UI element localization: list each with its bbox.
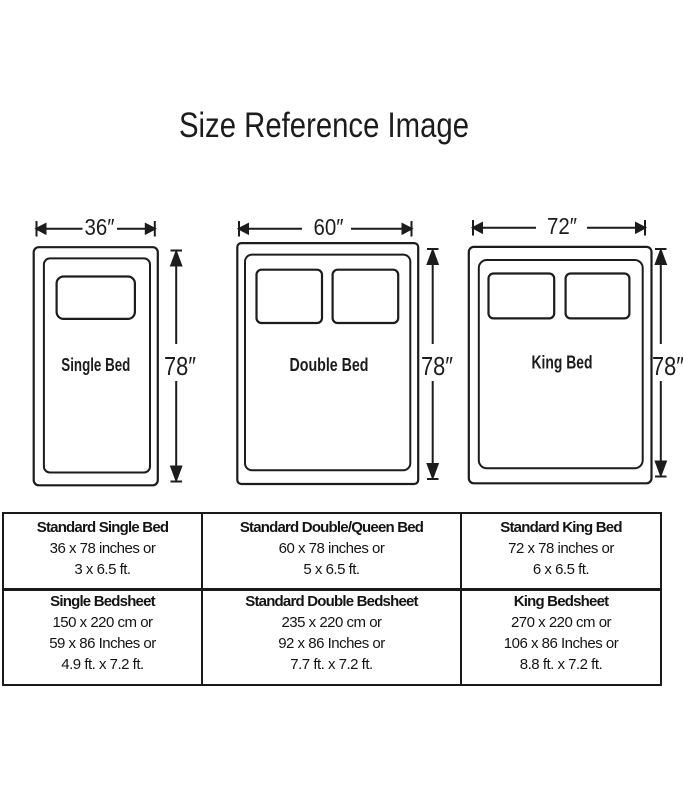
svg-text:78″: 78″ [164,351,196,381]
svg-text:King Bed: King Bed [532,353,593,373]
svg-text:72″: 72″ [547,213,577,239]
svg-text:Single Bed: Single Bed [61,355,130,375]
svg-text:78″: 78″ [652,351,683,381]
svg-text:Double Bed: Double Bed [290,355,369,375]
svg-text:36″: 36″ [85,214,115,240]
svg-text:60″: 60″ [314,214,344,240]
svg-text:78″: 78″ [421,351,453,381]
svg-text:Size Reference Image: Size Reference Image [179,106,469,145]
